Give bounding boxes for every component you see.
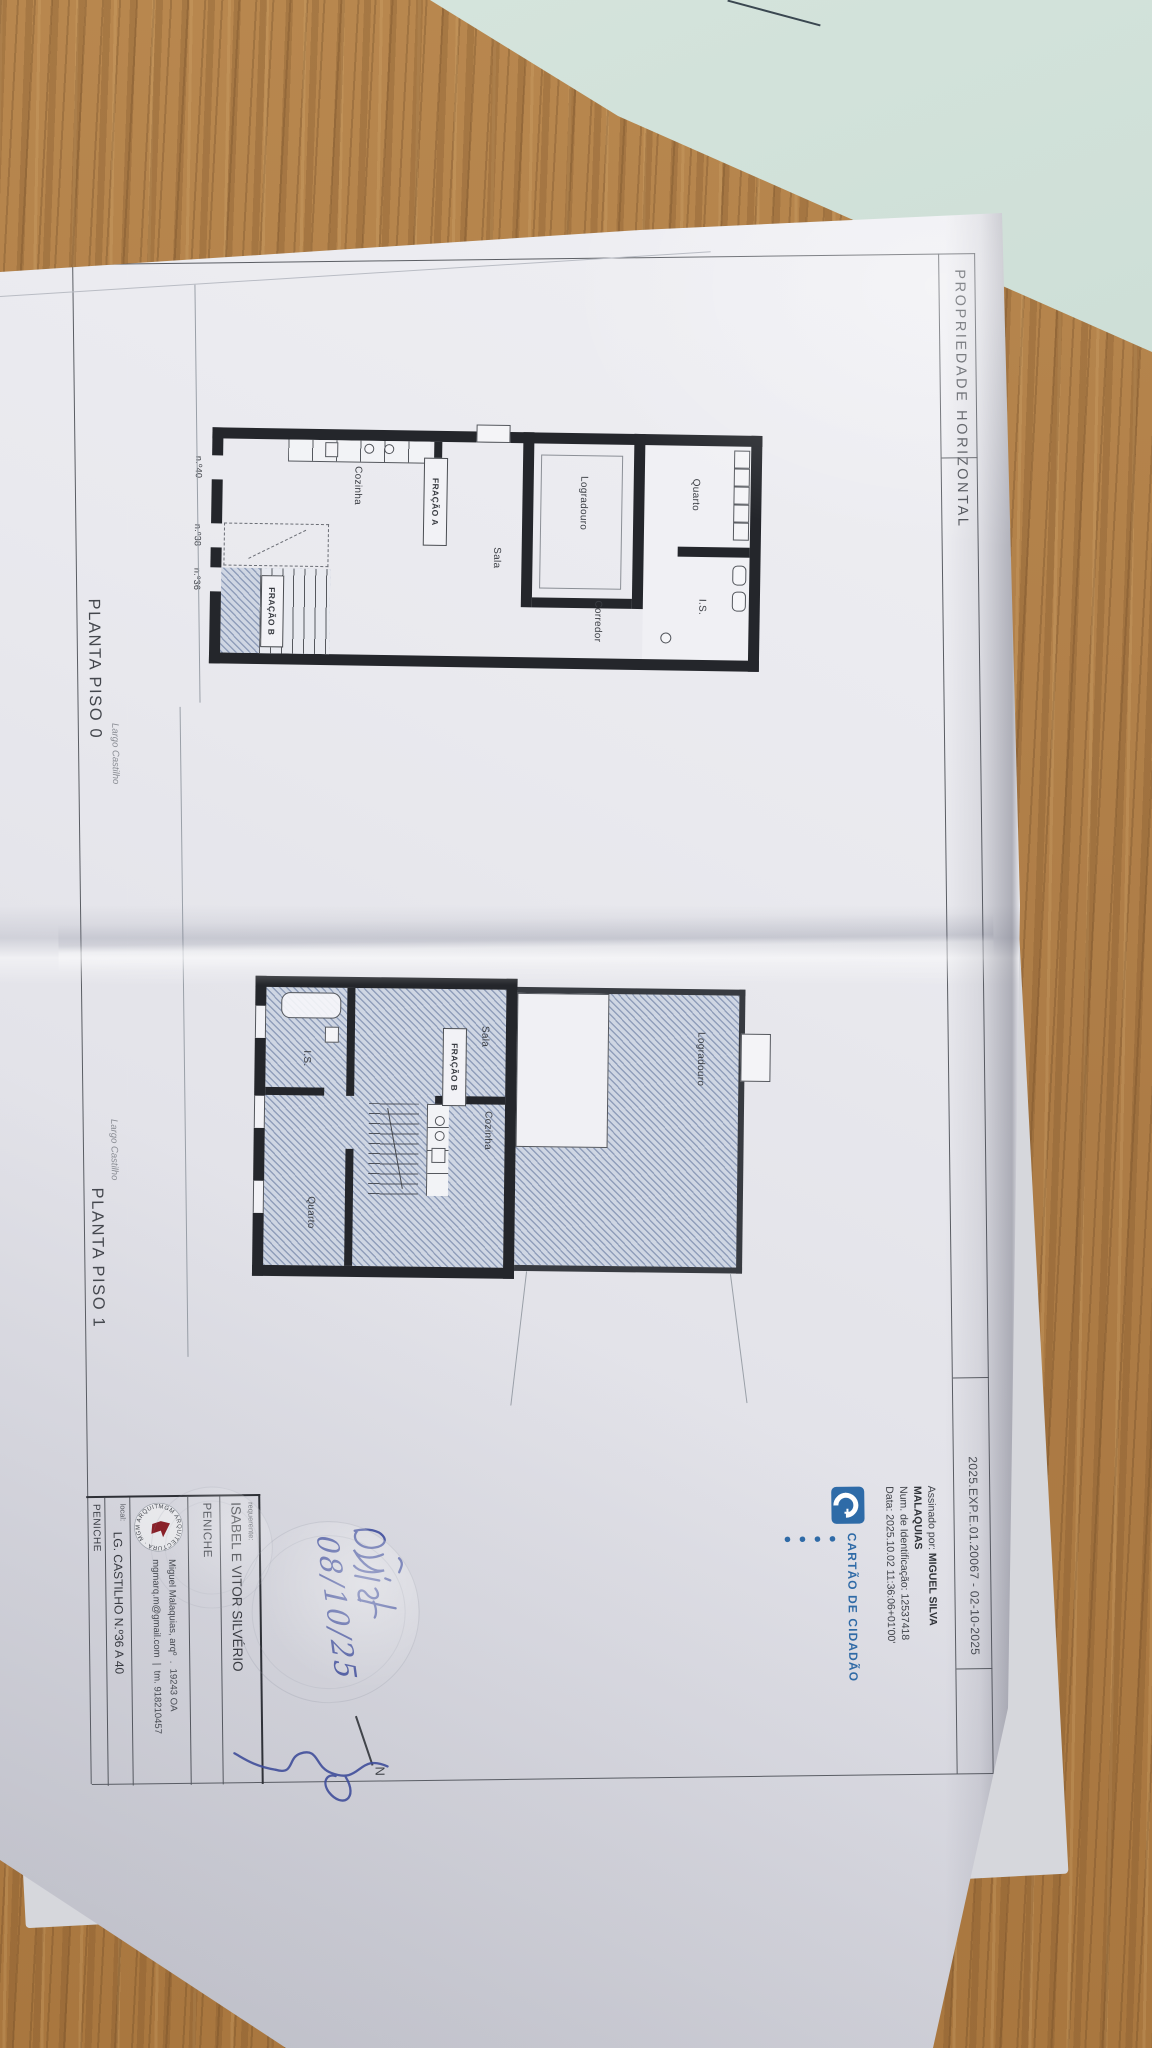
- contact-line: mgmarq.m@gmail.com | tm. 918210457: [150, 1559, 163, 1734]
- sink: [325, 1027, 339, 1043]
- wall: [344, 1149, 353, 1266]
- fraction-b-label: FRAÇÃO B: [442, 1028, 467, 1106]
- header-separator-3: [956, 1668, 992, 1669]
- wall: [265, 1087, 324, 1096]
- signature-date-line: Data: 2025.10.02 11:36:06+01'00': [882, 1486, 898, 1643]
- floor-plan-piso0: Quarto I.S. Corredor Logradouro Sala FRA…: [174, 427, 763, 672]
- room-label-quarto: Quarto: [690, 479, 702, 512]
- wall: [210, 547, 221, 567]
- wall: [211, 479, 223, 523]
- wall: [252, 1213, 264, 1276]
- sink: [732, 565, 746, 585]
- wall: [532, 597, 632, 609]
- wardrobe: [733, 486, 749, 504]
- room-label-corredor: Corredor: [592, 600, 604, 642]
- mgm-arquitectura-logo: MGM ARQUITECTURA · MGM ARQUITECTURA ·: [133, 1502, 184, 1553]
- wall: [209, 591, 221, 663]
- local-label: local:: [118, 1504, 127, 1522]
- annex-outbuilding: [740, 1034, 771, 1082]
- architect-line: Miguel Malaquias, arqº . 19243 OA: [166, 1559, 179, 1712]
- wardrobe: [733, 522, 749, 540]
- caption-planta-piso-1: PLANTA PISO 1: [87, 1187, 108, 1328]
- wall: [212, 427, 223, 455]
- document-title: PROPRIEDADE HORIZONTAL: [951, 269, 970, 528]
- street-line: [180, 707, 189, 1357]
- fold-crease: [58, 913, 994, 972]
- street-label-piso0: Largo Castilho: [109, 723, 121, 784]
- digital-signature-stamp: Assinado por: MIGUEL SILVA MALAQUIAS Num…: [882, 1486, 940, 1644]
- cartao-cidadao-icon: [831, 1487, 864, 1524]
- door-number-40: n.º40: [194, 456, 204, 478]
- hob-burner: [384, 444, 394, 454]
- hob-burner: [435, 1116, 445, 1126]
- wall: [253, 1128, 265, 1181]
- process-reference: 2025.EXP.E.01.20067 - 02-10-2025: [966, 1456, 982, 1655]
- hob-burner: [364, 444, 374, 454]
- room-label-sala: Sala: [479, 1026, 490, 1047]
- sink: [732, 591, 746, 611]
- local-city: PENICHE: [90, 1504, 102, 1552]
- room-label-logradouro: Logradouro: [695, 1032, 707, 1086]
- window: [255, 1006, 266, 1038]
- room-label-quarto: Quarto: [305, 1196, 316, 1229]
- wall: [678, 547, 750, 558]
- hob-burner: [435, 1131, 445, 1141]
- wardrobe: [734, 451, 750, 469]
- wall: [523, 432, 645, 445]
- kitchen-sink: [325, 442, 338, 457]
- stair-diagonal: [248, 530, 306, 559]
- bathtub: [281, 992, 341, 1019]
- room-label-cozinha: Cozinha: [482, 1111, 493, 1150]
- kitchen-counter: [288, 439, 430, 463]
- cartao-cidadao-label: CARTÃO DE CIDADÃO: [845, 1533, 861, 1683]
- fraction-b-label: FRAÇÃO B: [260, 575, 284, 647]
- document: PROPRIEDADE HORIZONTAL 2025.EXP.E.01.200…: [50, 245, 1004, 1796]
- folded-plan-sheet: PROPRIEDADE HORIZONTAL 2025.EXP.E.01.200…: [0, 0, 1152, 2048]
- fraction-a-label: FRAÇÃO A: [423, 458, 448, 546]
- stair-void-dashed: [223, 522, 329, 567]
- street-label-piso1: Largo Castilho: [108, 1119, 120, 1180]
- pen-mark-on-teal-sheet: [727, 0, 820, 26]
- header-separator-2: [953, 1377, 989, 1378]
- boundary-line: [510, 1271, 527, 1405]
- window: [253, 1181, 264, 1213]
- local-address: LG. CASTILHO N.º36 A 40: [111, 1532, 127, 1675]
- room-label-sala: Sala: [491, 547, 502, 568]
- caption-planta-piso-0: PLANTA PISO 0: [84, 598, 105, 739]
- boundary-line: [730, 1274, 748, 1403]
- row-divider: [104, 1498, 109, 1786]
- room-label-is: I.S.: [696, 599, 707, 615]
- floor-plan-piso1: Logradouro Sala Cozinha FRAÇÃO B I.S. Qu…: [237, 976, 786, 1283]
- kitchen-sink: [431, 1148, 445, 1163]
- row-divider: [187, 1497, 192, 1785]
- requerente-city: PENICHE: [200, 1503, 213, 1558]
- wardrobe: [733, 504, 749, 522]
- signature-id-line: Num. de Identificação: 12537418: [896, 1486, 912, 1643]
- wall: [521, 432, 535, 607]
- signature-line-1: Assinado por: MIGUEL SILVA: [924, 1486, 940, 1643]
- signature-line-2: MALAQUIAS: [910, 1486, 926, 1643]
- wall: [254, 1038, 266, 1096]
- wardrobe: [734, 469, 750, 487]
- lower-roof-area: [516, 993, 610, 1148]
- room-label-logradouro: Logradouro: [577, 476, 589, 530]
- wall: [346, 988, 355, 1096]
- wall: [748, 436, 763, 672]
- room-label-cozinha: Cozinha: [352, 466, 364, 505]
- stairs: [368, 1103, 419, 1196]
- window-recess: [476, 424, 510, 443]
- room-label-is: I.S.: [301, 1050, 312, 1066]
- window: [254, 1096, 265, 1128]
- wall: [634, 434, 762, 447]
- cartao-cidadao-dots: ● ● ● ●: [781, 1535, 841, 1549]
- wall: [252, 1265, 514, 1279]
- wall: [255, 976, 266, 1006]
